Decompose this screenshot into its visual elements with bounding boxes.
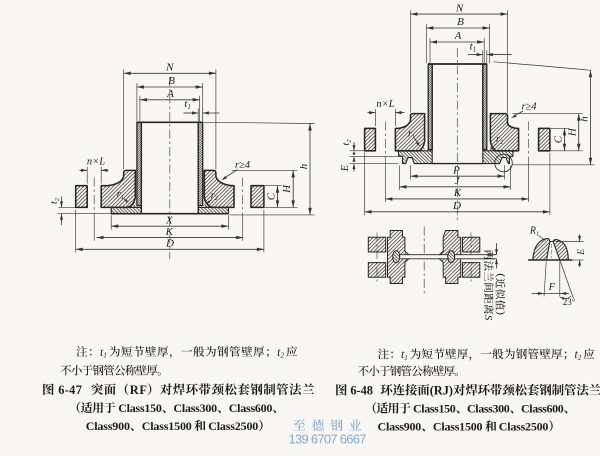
svg-text:D: D [452, 200, 461, 212]
svg-text:A: A [166, 88, 174, 100]
svg-text:Class900: Class900 [378, 420, 422, 434]
svg-text:E: E [340, 165, 351, 172]
svg-text:Class300: Class300 [467, 402, 510, 416]
svg-text:Class600: Class600 [521, 402, 564, 416]
svg-text:n×L: n×L [376, 99, 394, 110]
svg-text:6-48: 6-48 [350, 383, 373, 397]
svg-text:D: D [165, 238, 174, 250]
svg-text:K: K [165, 226, 174, 238]
svg-text:B: B [457, 16, 464, 28]
svg-text:X: X [165, 214, 174, 226]
svg-text:E: E [577, 249, 587, 256]
svg-text:RF: RF [130, 383, 147, 397]
svg-text:N: N [455, 2, 464, 14]
svg-text:Class1500: Class1500 [433, 420, 483, 434]
svg-text:C: C [553, 135, 565, 143]
svg-text:r≥4: r≥4 [521, 102, 537, 113]
svg-text:(RJ): (RJ) [430, 383, 453, 397]
svg-text:N: N [165, 62, 174, 74]
svg-text:A: A [454, 30, 462, 42]
svg-text:Class2500: Class2500 [208, 419, 258, 433]
svg-text:Class150: Class150 [413, 402, 456, 416]
svg-text:H: H [281, 184, 293, 194]
svg-text:Class900: Class900 [86, 419, 130, 433]
svg-text:K: K [453, 187, 462, 199]
svg-text:S: S [482, 315, 493, 321]
svg-text:Class1500: Class1500 [142, 419, 192, 433]
svg-text:139 6707 6667: 139 6707 6667 [289, 432, 367, 447]
svg-text:h: h [578, 116, 590, 122]
svg-text:Class2500: Class2500 [499, 420, 549, 434]
svg-text:B: B [168, 75, 175, 87]
svg-text:F: F [548, 282, 556, 293]
svg-text:H: H [567, 127, 579, 137]
svg-text:n×L: n×L [87, 156, 105, 167]
svg-text:C: C [266, 192, 278, 200]
svg-text:6-47: 6-47 [58, 383, 82, 397]
svg-text:Class150: Class150 [118, 401, 162, 415]
svg-text:Class300: Class300 [173, 401, 217, 415]
svg-text:23°: 23° [563, 297, 576, 307]
svg-text:Class600: Class600 [229, 401, 273, 415]
svg-text:h: h [298, 163, 310, 169]
